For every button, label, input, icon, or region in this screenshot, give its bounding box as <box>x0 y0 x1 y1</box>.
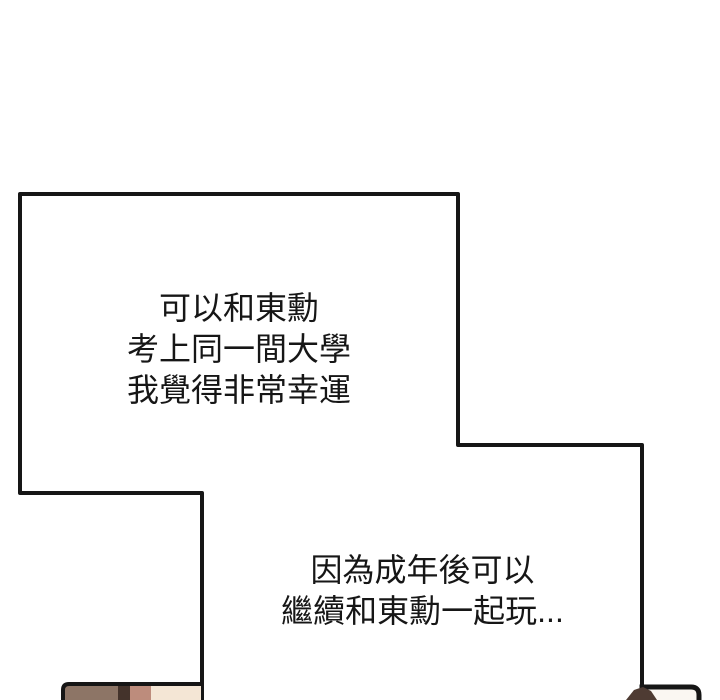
narration-line: 我覺得非常幸運 <box>20 370 458 411</box>
art-band-skin-pink <box>130 686 151 700</box>
narration-line: 繼續和東勳一起玩... <box>203 591 642 632</box>
narration-top: 可以和東勳 考上同一間大學 我覺得非常幸運 <box>20 288 458 411</box>
narration-bottom: 因為成年後可以 繼續和東勳一起玩... <box>203 550 642 632</box>
art-band-hair-brown <box>65 686 118 700</box>
comic-page: 可以和東勳 考上同一間大學 我覺得非常幸運 因為成年後可以 繼續和東勳一起玩..… <box>0 0 720 700</box>
narration-line: 考上同一間大學 <box>20 329 458 370</box>
art-band-dark-stripe <box>118 686 130 700</box>
narration-line: 可以和東勳 <box>20 288 458 329</box>
bottom-left-panel-art <box>63 684 201 700</box>
art-band-cream <box>151 686 201 700</box>
narration-line: 因為成年後可以 <box>203 550 642 591</box>
